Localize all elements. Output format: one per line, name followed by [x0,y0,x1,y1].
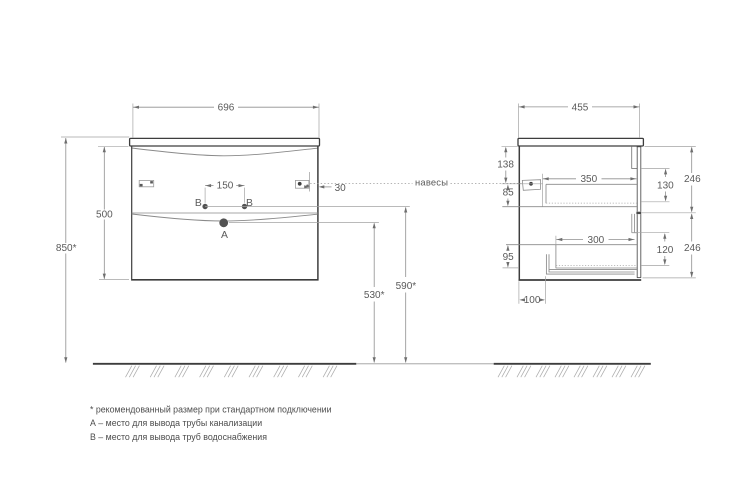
svg-text:30: 30 [335,183,347,194]
svg-text:246: 246 [684,174,701,185]
svg-text:246: 246 [684,243,701,254]
svg-text:150: 150 [217,180,234,191]
svg-text:500: 500 [96,209,113,220]
svg-text:100: 100 [524,295,541,306]
svg-text:120: 120 [657,245,674,256]
svg-text:В – место для вывода труб водо: В – место для вывода труб водоснабжения [90,432,267,442]
svg-text:696: 696 [218,103,235,114]
svg-text:455: 455 [572,102,589,113]
svg-text:850*: 850* [56,243,77,254]
svg-text:B: B [195,198,202,209]
svg-text:навесы: навесы [415,177,448,188]
svg-text:300: 300 [588,235,605,246]
svg-text:* рекомендованный размер при с: * рекомендованный размер при стандартном… [90,405,332,415]
svg-text:85: 85 [503,188,515,199]
svg-text:A: A [221,230,228,241]
svg-text:138: 138 [497,159,514,170]
svg-text:А – место для вывода трубы кан: А – место для вывода трубы канализации [90,418,262,428]
svg-text:95: 95 [503,252,515,263]
svg-text:590*: 590* [396,281,417,292]
svg-text:350: 350 [580,174,597,185]
svg-text:130: 130 [657,180,674,191]
svg-text:B: B [246,198,253,209]
svg-text:530*: 530* [364,290,385,301]
